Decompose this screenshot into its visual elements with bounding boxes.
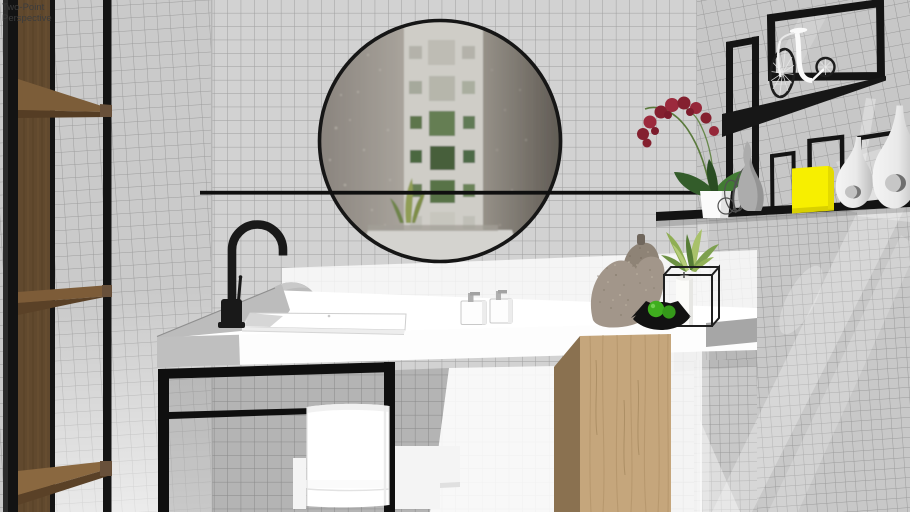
svg-text:Two-Point: Two-Point [2, 2, 45, 13]
svg-text:Perspective: Perspective [2, 13, 52, 24]
